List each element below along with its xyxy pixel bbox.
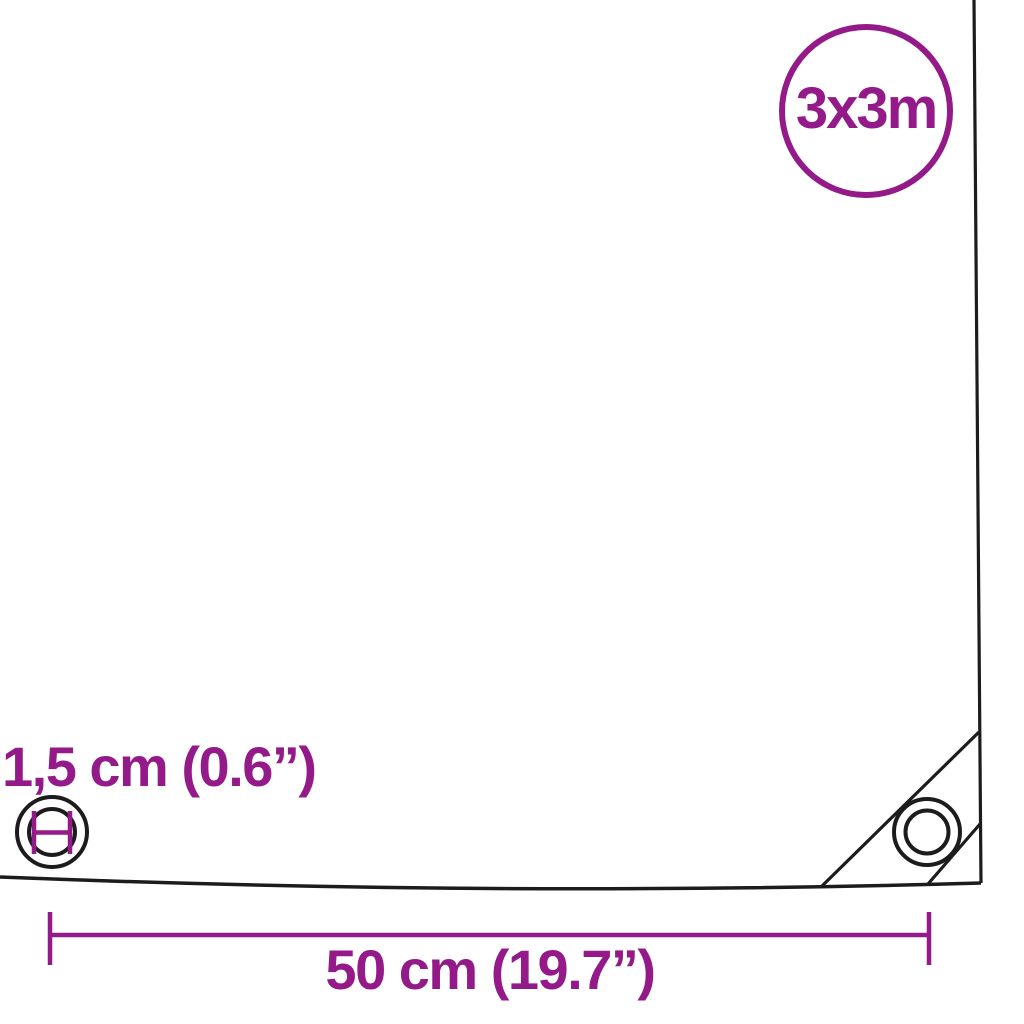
tarp-right-edge: [974, 0, 981, 883]
tarp-bottom-edge: [0, 877, 981, 889]
size-badge-label: 3x3m: [796, 80, 936, 142]
corner-fold-line: [822, 732, 979, 886]
eyelet-with-diameter-marker-icon: [17, 797, 87, 867]
corner-eyelet-inner-ring: [906, 811, 949, 854]
eyelet-spacing-label: 50 cm (19.7”): [50, 942, 930, 998]
corner-eyelet-icon: [894, 799, 960, 865]
eyelet-diameter-label: 1,5 cm (0.6”): [2, 739, 316, 795]
size-badge: 3x3m: [779, 24, 953, 198]
tarpaulin-dimension-diagram: 3x3m 1,5 cm (0.6”) 50 cm (19.7”): [0, 0, 1024, 1024]
